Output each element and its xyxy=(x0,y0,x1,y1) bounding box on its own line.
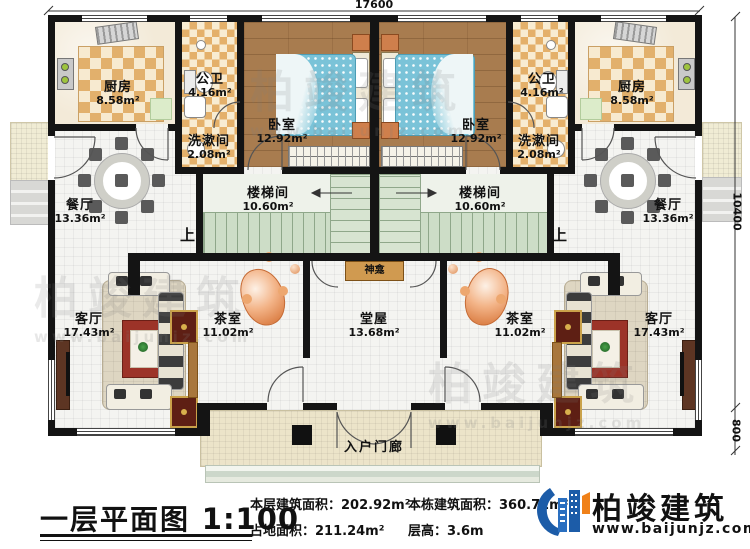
room-name: 公卫 xyxy=(516,72,568,87)
brand-logo-icon xyxy=(536,482,590,540)
wall xyxy=(55,124,136,131)
room-area: 8.58m² xyxy=(68,95,168,108)
porch-column xyxy=(292,425,312,445)
tv-icon xyxy=(680,352,684,396)
wardrobe-icon xyxy=(381,146,463,167)
wall xyxy=(506,167,575,174)
left-side-porch xyxy=(10,122,50,182)
window xyxy=(601,15,666,22)
burner-icon xyxy=(683,63,691,71)
room-name: 楼梯间 xyxy=(435,186,525,201)
room-name: 客厅 xyxy=(617,312,701,327)
stair-right-upper-flight xyxy=(379,174,421,255)
burner-icon xyxy=(683,76,691,84)
window xyxy=(262,15,350,22)
room-name: 洗漱间 xyxy=(178,134,240,149)
party-wall xyxy=(370,15,379,260)
room-area: 4.16m² xyxy=(184,87,236,100)
title-underline-thin xyxy=(40,540,252,541)
door-opening xyxy=(48,136,55,180)
room-name: 厨房 xyxy=(582,80,682,95)
room-area: 10.60m² xyxy=(435,201,525,214)
wall xyxy=(128,253,140,295)
stair-left-upper-flight xyxy=(330,174,372,255)
logo-orange-block xyxy=(582,492,590,514)
dining-chairs-icon xyxy=(115,174,128,187)
room-label-bedroom-left: 卧室 12.92m² xyxy=(236,118,328,146)
room-label-bath-right: 公卫 4.16m² xyxy=(516,72,568,100)
room-name: 餐厅 xyxy=(624,198,712,213)
window xyxy=(398,15,486,22)
wall xyxy=(379,167,466,174)
stat-label: 本层建筑面积： xyxy=(250,498,341,513)
window xyxy=(48,360,55,420)
faucet-icon xyxy=(546,40,556,50)
cushion-icon xyxy=(140,276,152,286)
room-name: 厨房 xyxy=(68,80,168,95)
room-name: 餐厅 xyxy=(36,198,124,213)
stat-value: 211.24m² xyxy=(315,524,384,539)
room-area: 12.92m² xyxy=(236,133,328,146)
wall xyxy=(440,260,447,358)
wall xyxy=(500,167,506,174)
room-name: 公卫 xyxy=(184,72,236,87)
pillow-icon xyxy=(354,58,368,88)
room-name: 卧室 xyxy=(430,118,522,133)
room-area: 17.43m² xyxy=(617,327,701,340)
wall xyxy=(303,403,337,410)
room-label-hall: 堂屋 13.68m² xyxy=(332,312,416,340)
logo-swoosh xyxy=(537,488,561,536)
room-label-kitchen-left: 厨房 8.58m² xyxy=(68,80,168,108)
burner-icon xyxy=(61,63,69,71)
cushion-icon xyxy=(586,389,598,399)
wall xyxy=(175,167,244,174)
knob-icon xyxy=(565,324,571,330)
wardrobe-icon xyxy=(288,146,370,167)
room-label-kitchen-right: 厨房 8.58m² xyxy=(582,80,682,108)
wall xyxy=(608,253,620,295)
room-label-tea-right: 茶室 11.02m² xyxy=(487,312,553,340)
dimension-right-lower: 800 xyxy=(730,413,743,449)
room-label-bath-left: 公卫 4.16m² xyxy=(184,72,236,100)
wood-partition-icon xyxy=(552,342,562,398)
room-area: 4.16m² xyxy=(516,87,568,100)
dimension-top: 17600 xyxy=(339,0,409,11)
tea-stones-icon xyxy=(290,264,300,274)
dimension-right-upper: 10400 xyxy=(731,187,744,237)
stat-storey-height: 层高：3.6m xyxy=(408,520,484,539)
plant-icon xyxy=(138,342,148,352)
room-label-bedroom-right: 卧室 12.92m² xyxy=(430,118,522,146)
room-area: 13.36m² xyxy=(36,213,124,226)
nightstand-icon xyxy=(381,34,399,51)
logo-tower xyxy=(569,490,580,532)
room-area: 2.08m² xyxy=(178,149,240,162)
display-cabinet-icon xyxy=(554,310,582,344)
window xyxy=(77,428,175,436)
plant-icon xyxy=(600,342,610,352)
knob-icon xyxy=(565,409,571,415)
room-label-stair-right: 楼梯间 10.60m² xyxy=(435,186,525,214)
window xyxy=(521,15,558,22)
room-area: 13.68m² xyxy=(332,327,416,340)
room-area: 13.36m² xyxy=(624,213,712,226)
room-name: 卧室 xyxy=(236,118,328,133)
plan-title-text: 一层平面图 xyxy=(40,503,190,536)
room-name: 堂屋 xyxy=(332,312,416,327)
stat-floor-area: 本层建筑面积：202.92m² xyxy=(250,494,410,513)
room-area: 17.43m² xyxy=(47,327,131,340)
wood-partition-icon xyxy=(188,342,198,398)
room-area: 11.02m² xyxy=(487,327,553,340)
stat-site-area: 占地面积：211.24m² xyxy=(250,520,384,539)
dining-chairs-icon xyxy=(621,174,634,187)
wall xyxy=(614,124,695,131)
cushion-icon xyxy=(140,389,152,399)
wall xyxy=(575,124,582,131)
tv-cabinet-icon xyxy=(682,340,696,410)
wall xyxy=(200,403,267,410)
display-cabinet-icon xyxy=(170,396,198,428)
window xyxy=(695,360,702,420)
wall xyxy=(411,403,445,410)
floor-plan-canvas: 神龛 xyxy=(0,0,750,549)
wall xyxy=(303,260,310,358)
window xyxy=(190,15,227,22)
title-underline xyxy=(40,534,252,537)
room-label-stair-left: 楼梯间 10.60m² xyxy=(223,186,313,214)
wall xyxy=(540,403,553,436)
brand-url: www.baijunjz.com xyxy=(592,521,750,537)
window xyxy=(575,428,673,436)
display-cabinet-icon xyxy=(170,310,198,344)
room-area: 10.60m² xyxy=(223,201,313,214)
room-label-dining-right: 餐厅 13.36m² xyxy=(624,198,712,226)
room-label-dining-left: 餐厅 13.36m² xyxy=(36,198,124,226)
stairs-up-label: 上 xyxy=(552,224,567,245)
entry-porch-label: 入户门廊 xyxy=(324,436,424,455)
stair-left-lower-flight xyxy=(203,212,347,255)
room-label-tea-left: 茶室 11.02m² xyxy=(195,312,261,340)
tea-stones-icon xyxy=(448,264,458,274)
room-area: 11.02m² xyxy=(195,327,261,340)
room-label-wash-left: 洗漱间 2.08m² xyxy=(178,134,240,162)
faucet-icon xyxy=(196,40,206,50)
stat-value: 3.6m xyxy=(447,524,484,539)
knob-icon xyxy=(181,324,187,330)
room-name: 茶室 xyxy=(487,312,553,327)
tv-icon xyxy=(66,352,70,396)
wall xyxy=(128,253,620,261)
room-label-living-left: 客厅 17.43m² xyxy=(47,312,131,340)
stat-label: 占地面积： xyxy=(250,524,315,539)
room-area: 2.08m² xyxy=(508,149,570,162)
shrine-cabinet: 神龛 xyxy=(345,261,404,281)
room-name: 客厅 xyxy=(47,312,131,327)
cushion-icon xyxy=(116,276,128,286)
nightstand-icon xyxy=(352,34,370,51)
display-cabinet-icon xyxy=(554,396,582,428)
right-side-porch xyxy=(702,122,742,182)
wall xyxy=(168,124,175,131)
nightstand-icon xyxy=(381,122,399,139)
porch-column xyxy=(436,425,456,445)
nightstand-icon xyxy=(352,122,370,139)
stairs-up-label: 上 xyxy=(180,224,195,245)
cushion-icon xyxy=(114,389,126,399)
wall xyxy=(282,167,371,174)
window xyxy=(82,15,147,22)
cushion-icon xyxy=(612,389,624,399)
room-area: 12.92m² xyxy=(430,133,522,146)
room-name: 茶室 xyxy=(195,312,261,327)
stat-value: 202.92m² xyxy=(341,498,410,513)
door-opening xyxy=(695,136,702,180)
room-name: 楼梯间 xyxy=(223,186,313,201)
entry-steps xyxy=(205,465,540,483)
knob-icon xyxy=(181,409,187,415)
wall xyxy=(481,403,540,410)
cushion-icon xyxy=(588,276,600,286)
room-area: 8.58m² xyxy=(582,95,682,108)
stat-label: 层高： xyxy=(408,524,447,539)
stair-right-lower-flight xyxy=(405,212,549,255)
stat-label: 本栋建筑面积： xyxy=(408,498,499,513)
room-label-living-right: 客厅 17.43m² xyxy=(617,312,701,340)
wall xyxy=(196,174,203,253)
